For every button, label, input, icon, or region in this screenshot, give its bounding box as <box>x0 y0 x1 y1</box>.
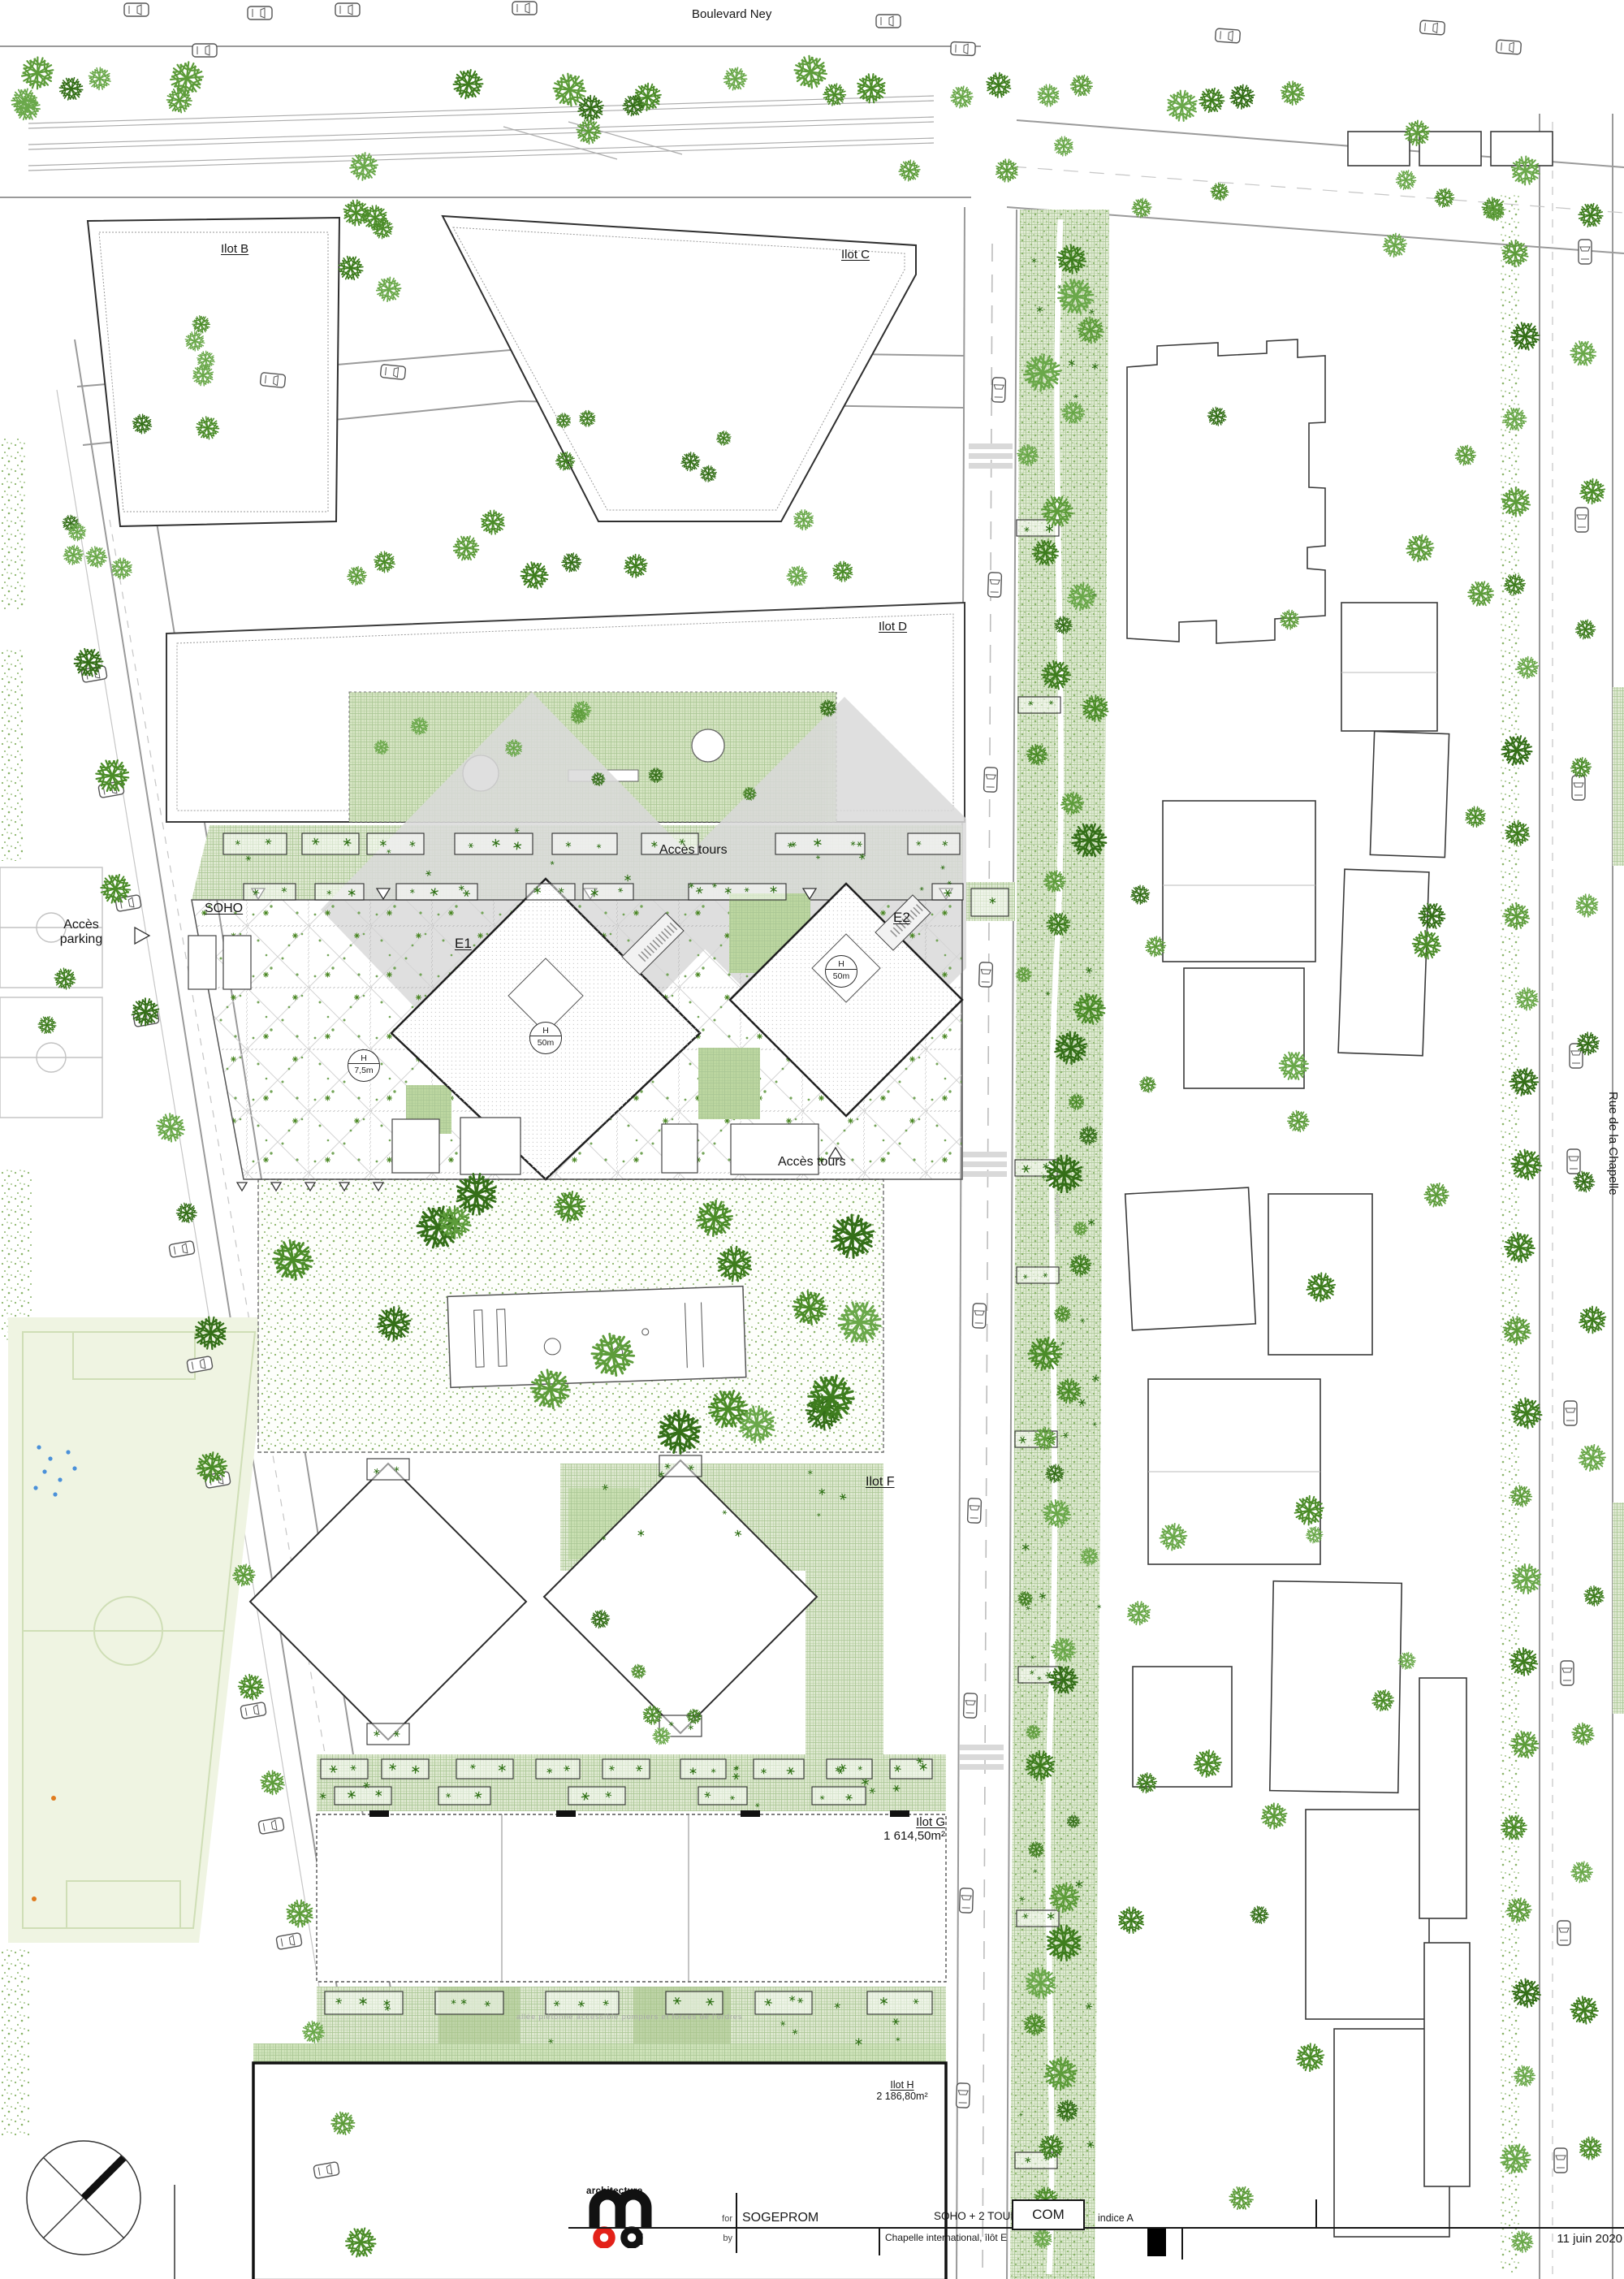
label-acces-parking: Accès parking <box>36 918 127 947</box>
label-acces-tours-top: Accès tours <box>659 843 728 858</box>
titleblock-phase: COM <box>1012 2199 1085 2230</box>
titleblock-vline-3 <box>1181 2229 1183 2260</box>
right-district-buildings <box>1125 132 1553 2237</box>
label-ilot-d: Ilot D <box>879 621 907 634</box>
titleblock-vline-2 <box>879 2228 880 2255</box>
building-church <box>1127 339 1325 643</box>
moa-logo-glyphs <box>586 2186 656 2248</box>
height-marker-soho: H 7,5m <box>348 1049 380 1082</box>
label-ilot-b: Ilot B <box>221 243 248 257</box>
label-ilot-g-area: 1 614,50m² <box>844 1830 945 1844</box>
label-ilot-h: Ilot H 2 186,80m² <box>857 2079 947 2102</box>
label-acces-tours-bottom: Accès tours <box>778 1155 846 1170</box>
label-fire-lane-note: allée piétonne accessible pompiers et fo… <box>516 2013 742 2022</box>
titleblock-vline-1 <box>736 2193 737 2253</box>
label-ilot-h-area: 2 186,80m² <box>857 2091 947 2102</box>
moa-logo-o <box>597 2230 612 2246</box>
ilot-g-building <box>317 1810 946 2045</box>
sports-field <box>8 1317 270 1943</box>
titleblock-black-square <box>1147 2229 1166 2256</box>
logo-m <box>594 2195 646 2227</box>
label-ilot-c: Ilot C <box>841 249 870 262</box>
titleblock-for: for <box>697 2214 732 2224</box>
height-marker-e2: H 50m <box>825 955 857 988</box>
label-tower-e1: E1 <box>455 936 472 951</box>
label-rue-de-la-chapelle: Rue de la Chapelle <box>1605 1092 1619 1196</box>
playground <box>447 1287 746 1388</box>
label-ilot-f: Ilot F <box>866 1475 895 1490</box>
titleblock-index: indice A <box>1098 2212 1134 2224</box>
label-tower-e2: E2 <box>893 910 910 925</box>
titleblock-client: SOGEPROM <box>742 2211 818 2225</box>
titleblock-vline-4 <box>1315 2199 1317 2228</box>
label-voie-pompiers: voie pompiers <box>1053 1194 1060 1235</box>
railway-tracks <box>28 96 934 171</box>
titleblock-by: by <box>697 2234 732 2243</box>
label-boulevard-ney: Boulevard Ney <box>692 8 771 22</box>
label-ilot-g: Ilot G 1 614,50m² <box>844 1816 945 1844</box>
height-marker-e1: H 50m <box>529 1022 562 1054</box>
site-plan-canvas <box>0 0 1624 2279</box>
north-compass <box>27 2141 140 2255</box>
basketball-courts <box>0 867 102 1118</box>
titleblock-date: 11 juin 2020 <box>1541 2232 1622 2246</box>
titleblock-hline <box>568 2227 1624 2229</box>
site-plan: Boulevard Ney Rue de la Chapelle Ilot B … <box>0 0 1624 2279</box>
label-soho: SOHO <box>205 902 243 916</box>
titleblock-subtitle: Chapelle international, îlôt E <box>885 2232 1007 2243</box>
moa-logo: architecture <box>586 2186 659 2196</box>
